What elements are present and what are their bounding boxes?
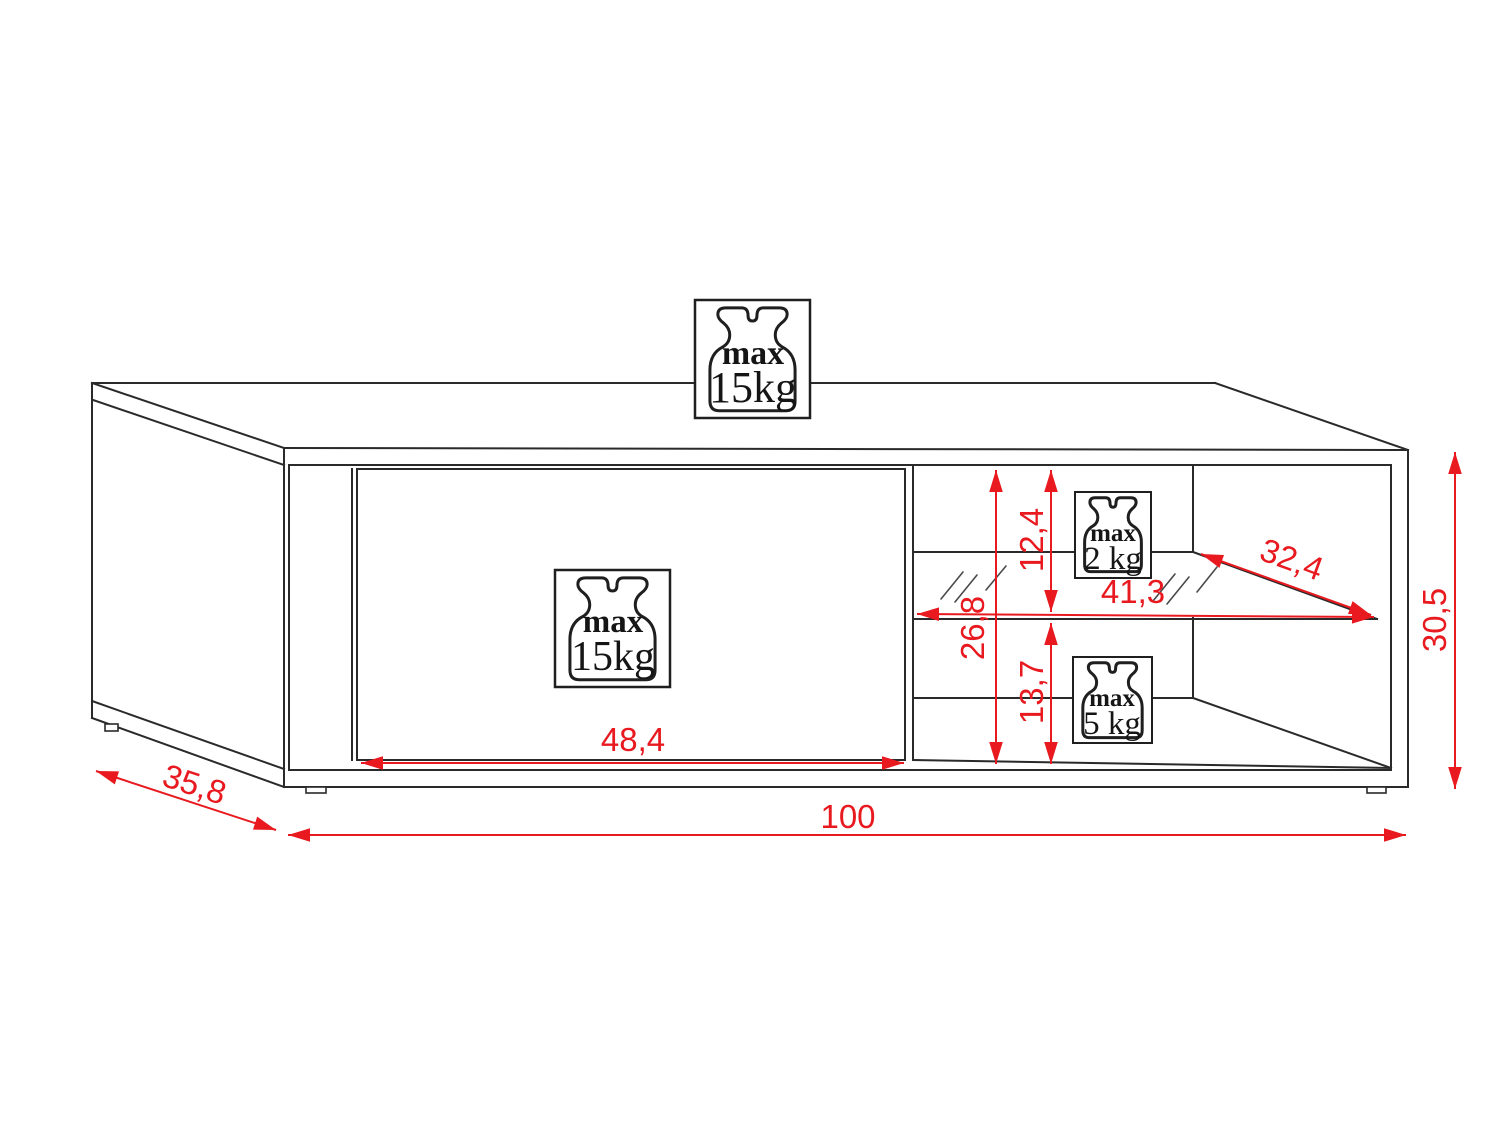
label-lower-opening-height: 13,7 xyxy=(1013,660,1050,724)
top-left-diagonal-outer xyxy=(92,383,284,448)
foot-back-left xyxy=(105,724,118,731)
label-front-panel-width: 48,4 xyxy=(601,721,665,758)
front-top-edge xyxy=(284,448,1408,450)
max-load-badge-glass-shelf: max 2 kg xyxy=(1075,492,1151,578)
label-total-width: 100 xyxy=(820,798,875,835)
furniture-dimension-diagram: 48,4 100 35,8 30,5 26,8 12,4 13,7 41,3 3… xyxy=(0,0,1500,1125)
diagram-canvas: 48,4 100 35,8 30,5 26,8 12,4 13,7 41,3 3… xyxy=(0,0,1500,1125)
foot-front-right xyxy=(1367,787,1386,793)
max-load-badge-bottom-shelf: max 5 kg xyxy=(1073,657,1152,743)
compartment-floor-right-edge xyxy=(1193,698,1391,768)
glass-hatch-stroke xyxy=(1197,567,1217,592)
foot-front-left xyxy=(306,787,326,793)
label-upper-opening-height: 12,4 xyxy=(1013,508,1050,572)
dimension-lines xyxy=(96,452,1455,835)
top-left-diagonal-inner xyxy=(93,400,284,465)
label-interior-height: 26,8 xyxy=(954,596,991,660)
glass-hatch-stroke xyxy=(1167,577,1189,604)
cabinet-outline xyxy=(92,383,1408,787)
badge-value-text: 15kg xyxy=(571,634,655,680)
badge-value-text: 2 kg xyxy=(1084,541,1142,577)
bottom-left-diagonal-upper xyxy=(92,701,284,769)
max-load-badge-front-panel: max 15kg xyxy=(555,570,670,687)
cabinet-feet xyxy=(105,724,1386,793)
glass-hatch-stroke xyxy=(941,572,963,599)
compartment-floor-front-edge xyxy=(913,760,1391,768)
label-total-height: 30,5 xyxy=(1416,588,1453,652)
badge-value-text: 5 kg xyxy=(1083,706,1141,742)
top-right-diagonal xyxy=(1215,383,1408,450)
max-load-badge-top-panel: max 15kg xyxy=(695,300,810,418)
badge-value-text: 15kg xyxy=(709,363,797,412)
